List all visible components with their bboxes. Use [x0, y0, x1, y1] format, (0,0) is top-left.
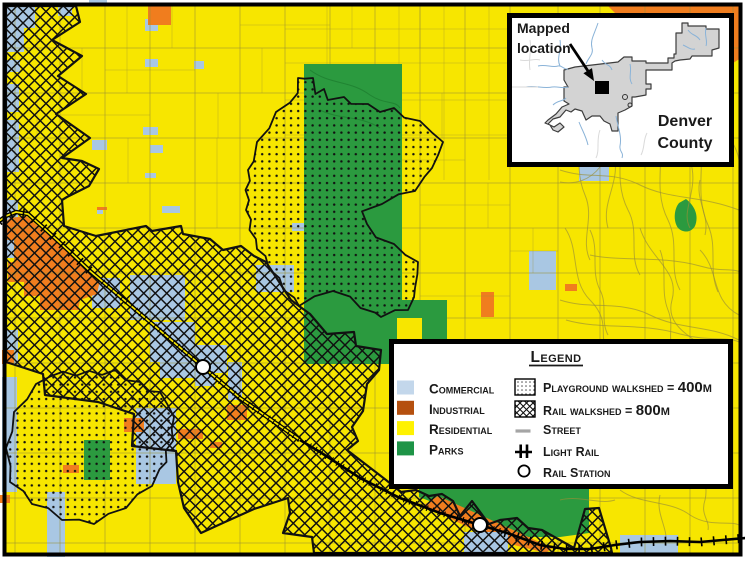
svg-text:Rail walkshed = 800m: Rail walkshed = 800m [543, 402, 670, 419]
svg-text:Rail Station: Rail Station [543, 466, 611, 480]
svg-text:Legend: Legend [531, 349, 582, 366]
svg-text:Light Rail: Light Rail [543, 445, 600, 459]
svg-text:Parks: Parks [429, 442, 464, 457]
svg-text:Street: Street [543, 423, 581, 437]
svg-text:Mapped: Mapped [517, 20, 570, 36]
svg-text:Denver: Denver [658, 113, 712, 130]
svg-text:County: County [657, 135, 712, 152]
svg-text:Residential: Residential [429, 422, 493, 437]
svg-text:Industrial: Industrial [429, 402, 485, 417]
svg-text:Commercial: Commercial [429, 382, 495, 397]
svg-text:Playground walkshed = 400m: Playground walkshed = 400m [543, 379, 712, 396]
svg-text:location: location [517, 40, 571, 56]
